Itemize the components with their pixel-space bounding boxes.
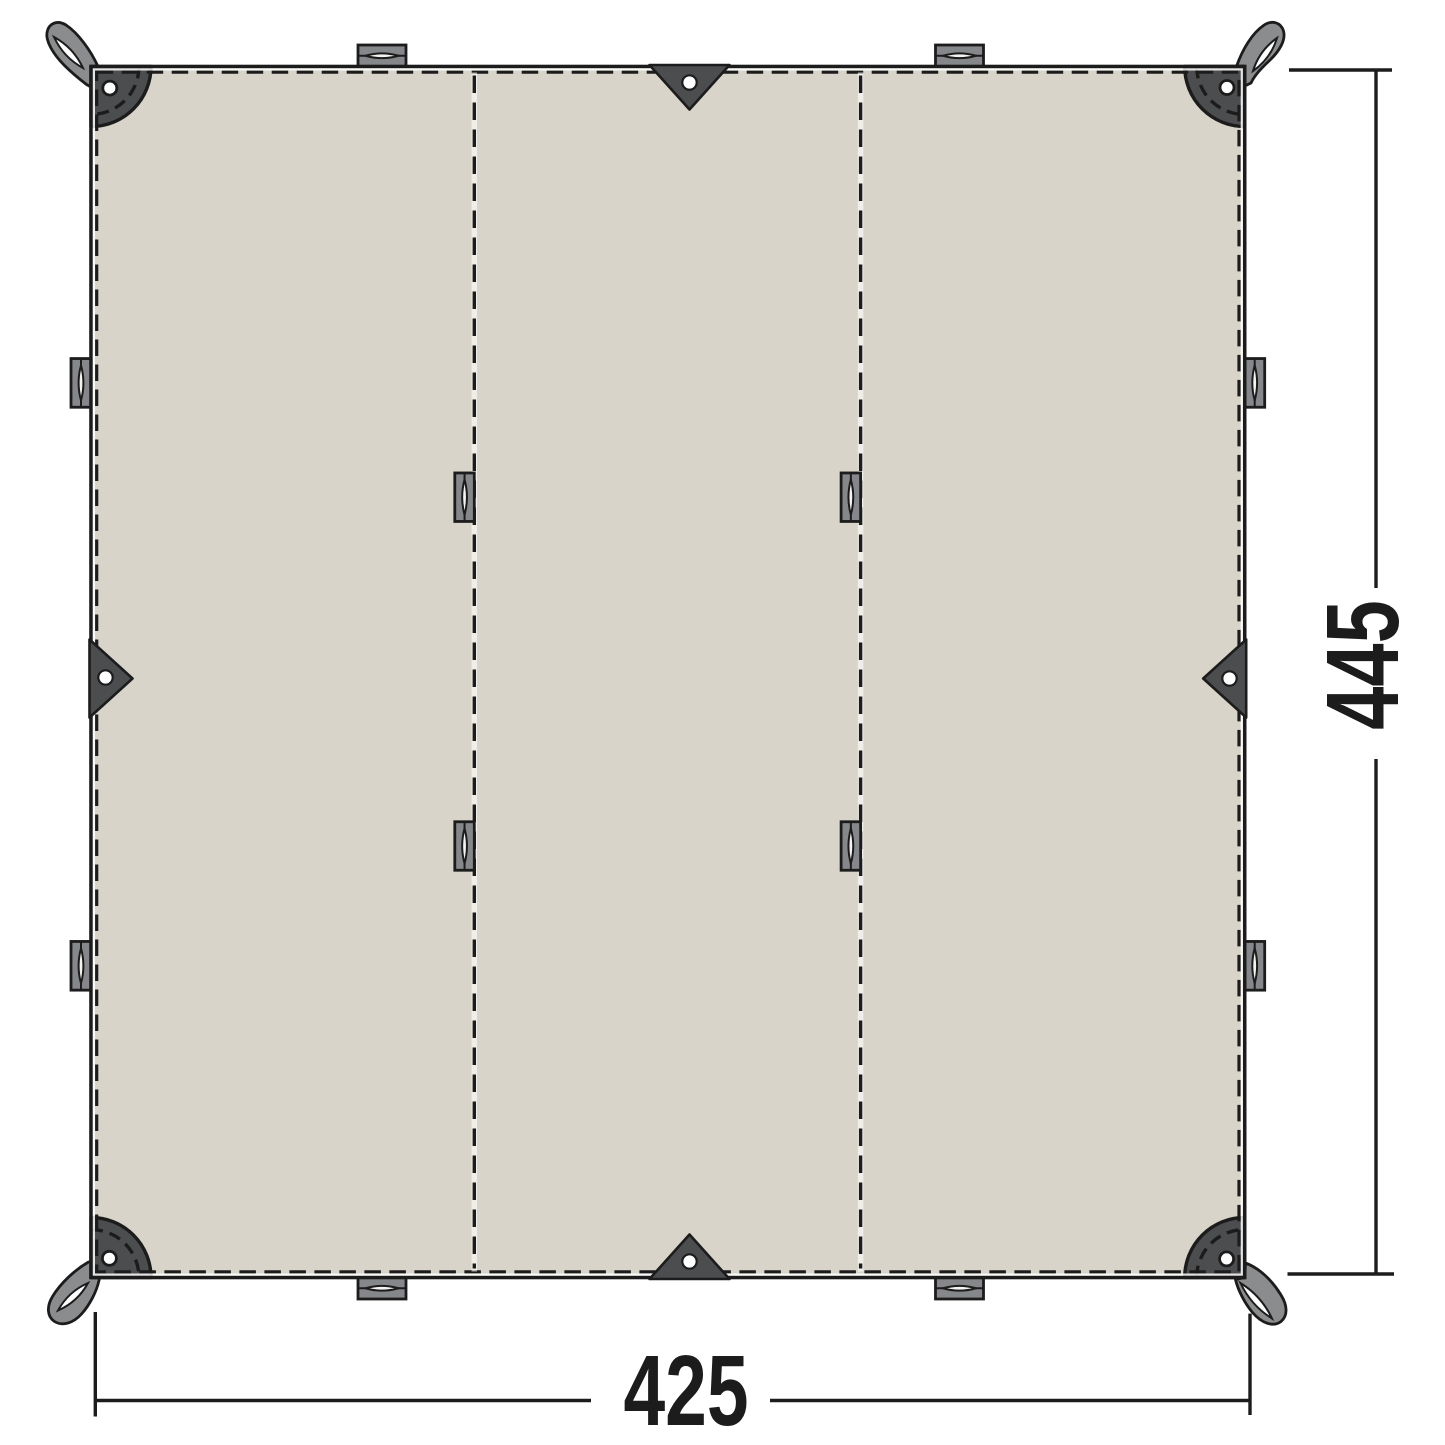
svg-text:425: 425 bbox=[623, 1334, 748, 1445]
svg-text:445: 445 bbox=[1305, 600, 1420, 730]
